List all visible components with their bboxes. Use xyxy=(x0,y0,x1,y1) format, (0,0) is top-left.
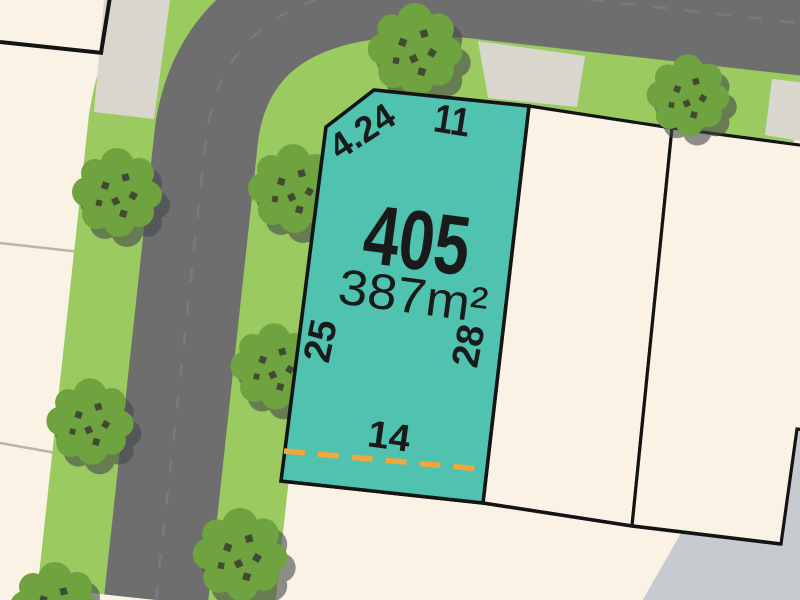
dimension-left-label: 25 xyxy=(296,316,346,366)
dimension-right-label: 28 xyxy=(444,321,493,371)
dimension-bottom-label: 14 xyxy=(365,413,413,460)
dimension-top-label: 11 xyxy=(431,96,473,145)
estate-map: 405 387m² 4.24 11 25 28 14 xyxy=(0,0,800,600)
